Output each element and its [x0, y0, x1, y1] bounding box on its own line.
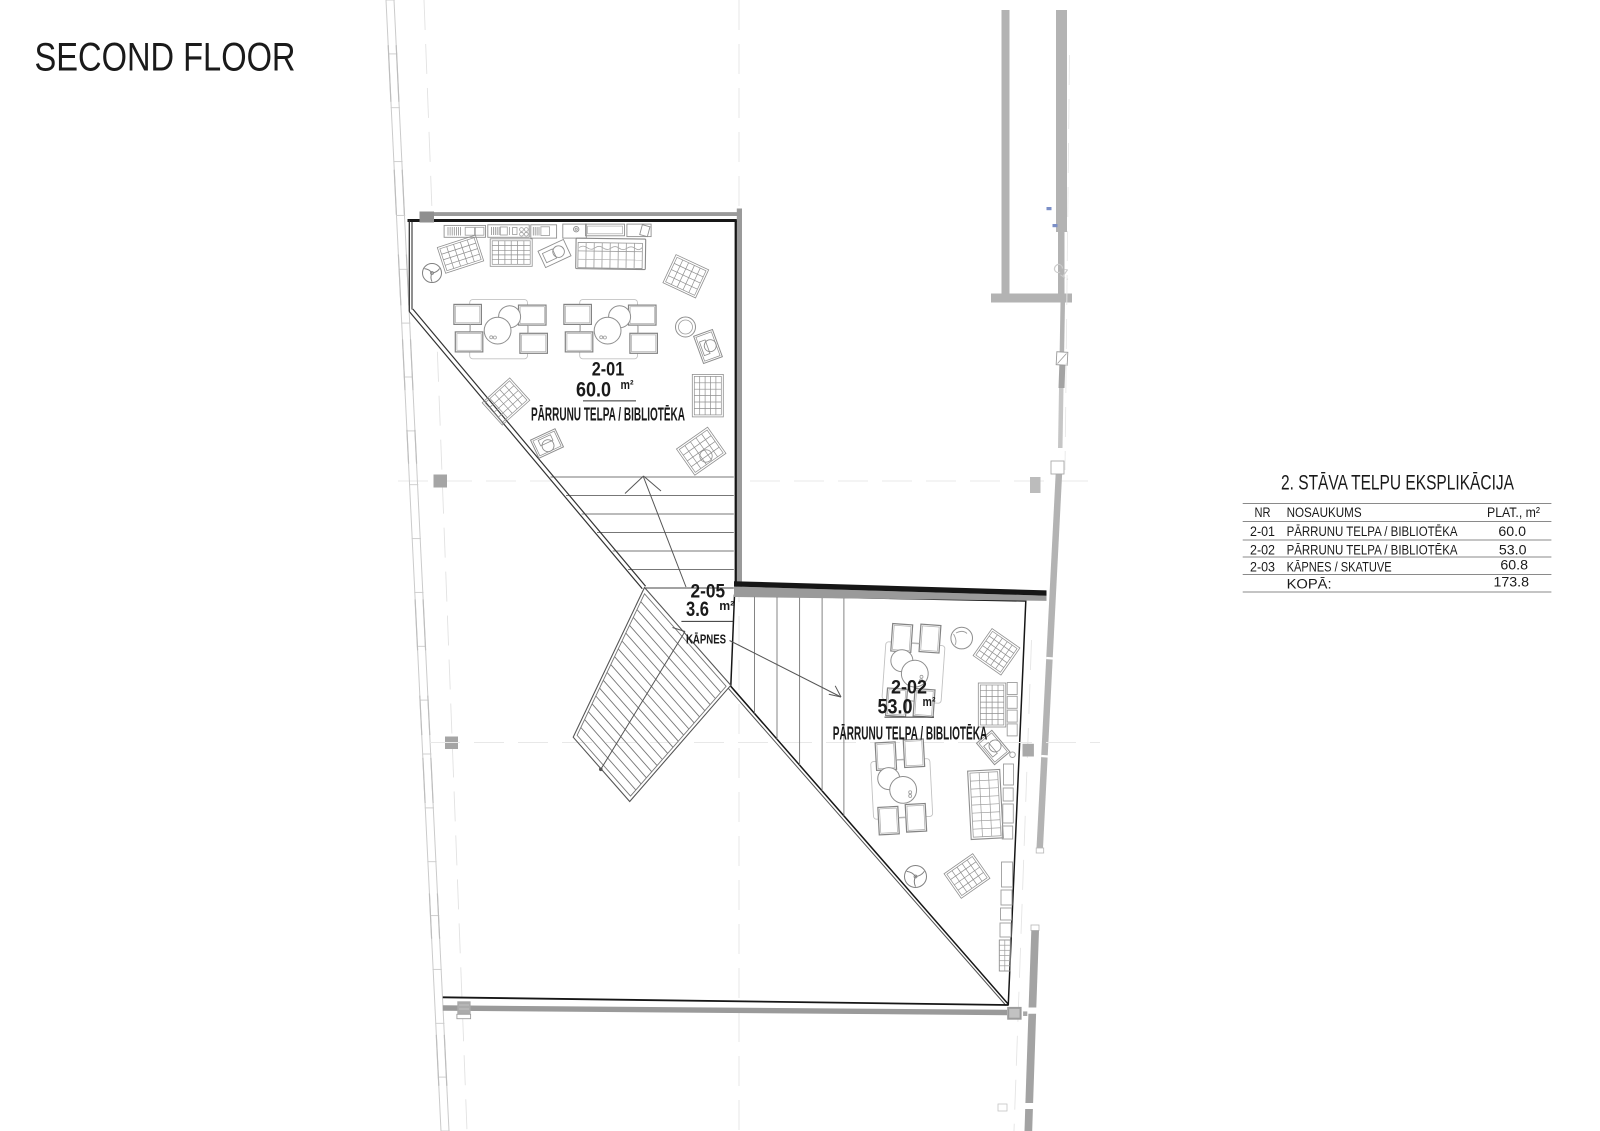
svg-text:KĀPNES / SKATUVE: KĀPNES / SKATUVE — [1287, 560, 1392, 576]
svg-text:2-02: 2-02 — [1250, 543, 1275, 559]
svg-text:2. STĀVA TELPU EKSPLIKĀCIJA: 2. STĀVA TELPU EKSPLIKĀCIJA — [1281, 471, 1514, 495]
svg-text:PĀRRUNU TELPA / BIBLIOTĒKA: PĀRRUNU TELPA / BIBLIOTĒKA — [531, 405, 685, 425]
svg-text:PĀRRUNU TELPA / BIBLIOTĒKA: PĀRRUNU TELPA / BIBLIOTĒKA — [833, 724, 988, 744]
svg-text:KOPĀ:: KOPĀ: — [1287, 577, 1332, 593]
svg-text:60.0: 60.0 — [1498, 524, 1526, 540]
svg-text:NR: NR — [1255, 505, 1271, 521]
svg-text:PĀRRUNU TELPA / BIBLIOTĒKA: PĀRRUNU TELPA / BIBLIOTĒKA — [1287, 524, 1458, 540]
svg-text:3.6: 3.6 — [686, 597, 709, 621]
svg-text:60.8: 60.8 — [1500, 558, 1528, 574]
svg-text:53.0: 53.0 — [1499, 543, 1527, 559]
svg-text:173.8: 173.8 — [1493, 575, 1529, 591]
svg-text:m²: m² — [923, 695, 936, 709]
svg-text:2-01: 2-01 — [1250, 524, 1275, 540]
svg-text:m²: m² — [719, 599, 734, 613]
svg-text:53.0: 53.0 — [878, 695, 913, 719]
svg-text:PĀRRUNU TELPA / BIBLIOTĒKA: PĀRRUNU TELPA / BIBLIOTĒKA — [1287, 543, 1458, 559]
svg-text:m²: m² — [621, 378, 634, 392]
svg-text:NOSAUKUMS: NOSAUKUMS — [1287, 505, 1362, 521]
svg-text:60.0: 60.0 — [576, 378, 611, 402]
svg-text:PLAT., m²: PLAT., m² — [1487, 505, 1540, 521]
svg-text:SECOND FLOOR: SECOND FLOOR — [35, 36, 296, 80]
svg-text:2-03: 2-03 — [1250, 560, 1275, 576]
svg-text:KĀPNES: KĀPNES — [686, 633, 726, 647]
